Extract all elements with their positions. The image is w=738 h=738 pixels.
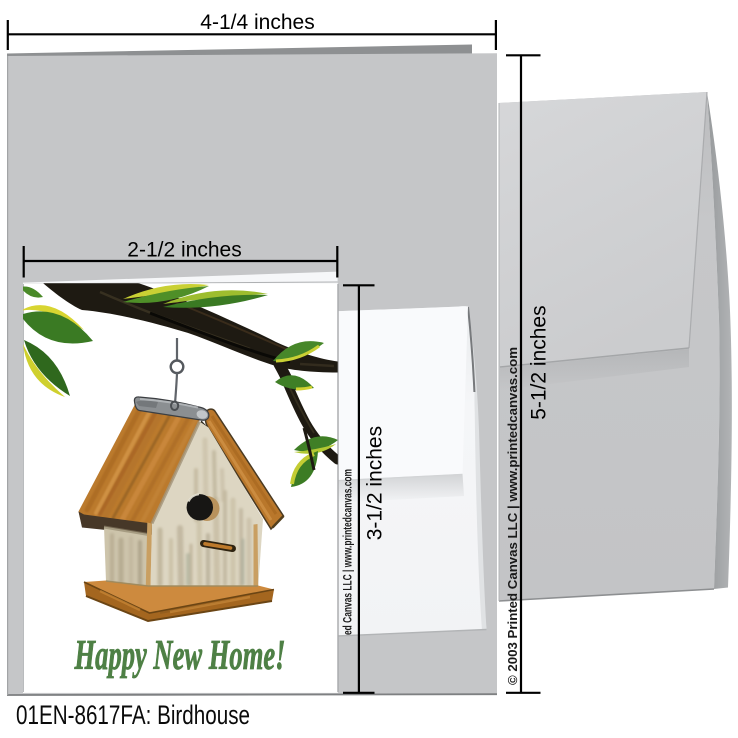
svg-text:Happy New Home!: Happy New Home! xyxy=(74,633,286,679)
svg-text:ed Canvas LLC | www.printedcan: ed Canvas LLC | www.printedcanvas.com xyxy=(340,469,354,635)
svg-text:01EN-8617FA: Birdhouse: 01EN-8617FA: Birdhouse xyxy=(16,700,250,730)
svg-text:© 2003 Printed Canvas LLC | ww: © 2003 Printed Canvas LLC | www.printedc… xyxy=(505,347,520,685)
svg-text:3-1/2 inches: 3-1/2 inches xyxy=(364,426,387,540)
svg-text:4-1/4 inches: 4-1/4 inches xyxy=(200,11,314,34)
svg-text:2-1/2 inches: 2-1/2 inches xyxy=(127,239,241,262)
svg-text:5-1/2 inches: 5-1/2 inches xyxy=(528,305,551,419)
